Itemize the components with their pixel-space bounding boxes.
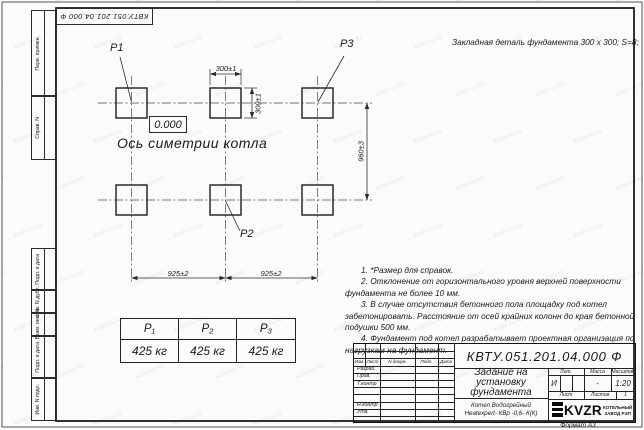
load-table-header: P₃ (237, 319, 295, 340)
note-item: 2. Отклонение от горизонтального уровня … (345, 276, 637, 299)
point-label-p1: P1 (110, 42, 123, 54)
elevation-mark: 0.000 (149, 116, 187, 133)
margin-field-vzam-inv: Взам. инв. N (31, 313, 56, 336)
tb-col-data: Дата (438, 358, 454, 365)
note-item: 1. *Размер для справок. (345, 265, 637, 276)
company-name: КОТЕЛЬНЫЙ ЗАВОД РЭП (603, 399, 635, 422)
margin-field-inv-podl: Инв. N подл. (31, 378, 56, 421)
tb-scale-label: Масштаб (611, 368, 635, 375)
note-item: 3. В случае отсутствия бетонного пола пл… (345, 299, 637, 333)
load-table-header: P₁ (121, 319, 179, 340)
tb-scale-value: 1:20 (611, 375, 635, 391)
top-stamp: КВТУ.051.201.04.000 Ф (56, 8, 153, 25)
dimension-span-left: 925±2 (163, 269, 193, 278)
tb-sheet-label: Лист (548, 391, 584, 399)
tb-sheets-label: Листов (584, 391, 616, 399)
point-label-p3: P3 (340, 38, 353, 50)
margin-field-label: Перв. примен. (35, 36, 41, 71)
tb-col-podp: Подп. (415, 358, 438, 365)
margin-field-label: Справ. N (35, 117, 41, 139)
dimension-span-right: 925±2 (256, 269, 286, 278)
tb-product: Котел Водогрейный Heatexpert- КВр -0,6- … (454, 398, 548, 422)
tb-sheets-value: 1 (616, 391, 635, 399)
margin-field-label: Инв. N подл. (35, 384, 41, 415)
dimension-vertical-span: 960±3 (357, 137, 366, 167)
top-stamp-doc-number: КВТУ.051.201.04.000 Ф (60, 12, 148, 21)
tb-mass-label: Масса (584, 368, 611, 375)
kvzr-logo-icon (552, 402, 563, 417)
margin-field-label: Подп. и дата (35, 254, 41, 285)
format-label: Формат А3 (520, 421, 636, 430)
embedded-part-note: Закладная деталь фундамента 300 x 300; S… (452, 37, 639, 47)
load-table-value: 425 кг (121, 340, 179, 362)
load-table: P₁ P₂ P₃ 425 кг 425 кг 425 кг (120, 318, 296, 363)
tb-lit-label: Лит. (548, 368, 584, 375)
tb-col-list: Лист (365, 358, 380, 365)
tb-doc-number: КВТУ.051.201.04.000 Ф (454, 344, 635, 368)
tb-lit-value: И (548, 375, 560, 391)
margin-field-podp-data-2: Подп. и дата (31, 336, 56, 378)
title-block: Изм. Лист N докум. Подп. Дата Разраб. Пр… (353, 343, 636, 423)
dimension-height-side: 300±1 (254, 89, 263, 119)
tb-title: Задание на установку фундамента (454, 368, 548, 398)
margin-field-sprav-n: Справ. N (31, 96, 56, 160)
tb-col-izm: Изм. (354, 358, 365, 365)
load-table-header: P₂ (179, 319, 237, 340)
margin-field-perv-primen: Перв. примен. (31, 10, 56, 96)
dimension-width-top: 300±1 (211, 64, 241, 73)
drawing-sheet: kotel-kv.kzkotel-kv.kzkotel-kv.kzkotel-k… (0, 0, 644, 430)
tb-row-prov: Пров. (354, 373, 383, 380)
tb-mass-value: - (584, 375, 611, 391)
tb-row-tkontr: Т.контр (354, 380, 383, 387)
kvzr-logo-text: KVZR (563, 399, 603, 422)
tb-row-utv: Утв. (354, 409, 383, 416)
boiler-axis-label: Ось симетрии котла (117, 135, 267, 151)
tb-col-ndokum: N докум. (380, 358, 415, 365)
tb-row-razrab: Разраб. (354, 366, 383, 373)
point-label-p2: P2 (240, 228, 253, 240)
margin-field-label: Подп. и дата (35, 342, 41, 373)
margin-field-podp-data-1: Подп. и дата (31, 248, 56, 290)
tb-row-nkontr: Н.контр (354, 402, 383, 409)
load-table-value: 425 кг (179, 340, 237, 362)
load-table-value: 425 кг (237, 340, 295, 362)
